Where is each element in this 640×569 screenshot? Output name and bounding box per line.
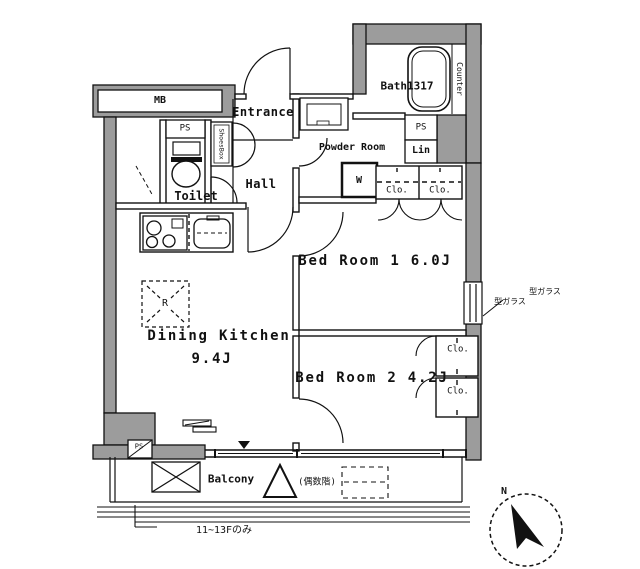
dining-kitchen-label: Dining Kitchen xyxy=(147,329,290,343)
frosted-glass-label-1: 型ガラス xyxy=(529,288,561,296)
washing-machine-mark: W xyxy=(356,176,362,186)
bathroom-label: Bath1317 xyxy=(381,81,434,92)
sink-icon xyxy=(194,216,230,248)
powder-room-label: Powder Room xyxy=(319,143,385,153)
toilet-icon xyxy=(171,142,202,187)
closet1-label: Clo. xyxy=(386,187,408,196)
meter-box-label: MB xyxy=(154,96,166,106)
overhead-cabinet-dash xyxy=(136,166,153,196)
washbasin-icon xyxy=(300,98,348,130)
pipe-space-toilet-label: PS xyxy=(180,125,191,134)
dining-kitchen-size-label: 9.4J xyxy=(192,352,233,366)
vent-triangle-mark xyxy=(238,441,250,449)
frosted-glass-label-2: 型ガラス xyxy=(494,298,526,306)
pipe-space-balcony-label: PS xyxy=(135,444,143,451)
evacuation-hatch-icon xyxy=(264,465,296,497)
refrigerator-mark: R xyxy=(162,299,168,309)
bedroom1-window xyxy=(464,282,482,324)
closet4-label: Clo. xyxy=(447,388,469,397)
balcony-rail-lines xyxy=(97,505,470,527)
bath-counter-label: Counter xyxy=(455,62,463,96)
kitchen-shelf-icon xyxy=(183,420,216,432)
shoes-box-label: ShoesBox xyxy=(218,128,225,159)
compass-north-label: N xyxy=(501,487,507,497)
balcony-wall-sliding-doors xyxy=(205,449,466,458)
balcony-label: Balcony xyxy=(208,474,254,485)
compass-icon xyxy=(490,494,562,566)
floor-range-note: 11~13Fのみ xyxy=(196,526,252,536)
lower-hatch-dashed xyxy=(342,467,388,498)
entrance-label: Entrance xyxy=(232,106,294,118)
pipe-space-bath-label: PS xyxy=(416,124,427,133)
bedroom1-label: Bed Room 1 6.0J xyxy=(298,254,451,268)
service-boxes xyxy=(98,90,437,458)
toilet-room-label: Toilet xyxy=(174,190,217,202)
stove-icon xyxy=(143,216,187,250)
linen-closet-label: Lin xyxy=(412,146,430,156)
hall-label: Hall xyxy=(246,178,277,190)
balcony-vent-icon xyxy=(152,462,200,492)
bedroom2-label: Bed Room 2 4.2J xyxy=(295,371,448,385)
closet2-label: Clo. xyxy=(429,187,451,196)
floor-plan: MB PS Toilet Entrance Hall ShoesBox Powd… xyxy=(0,0,640,569)
evacuation-hatch-note: (偶数階) xyxy=(298,479,336,488)
closet3-label: Clo. xyxy=(447,346,469,355)
